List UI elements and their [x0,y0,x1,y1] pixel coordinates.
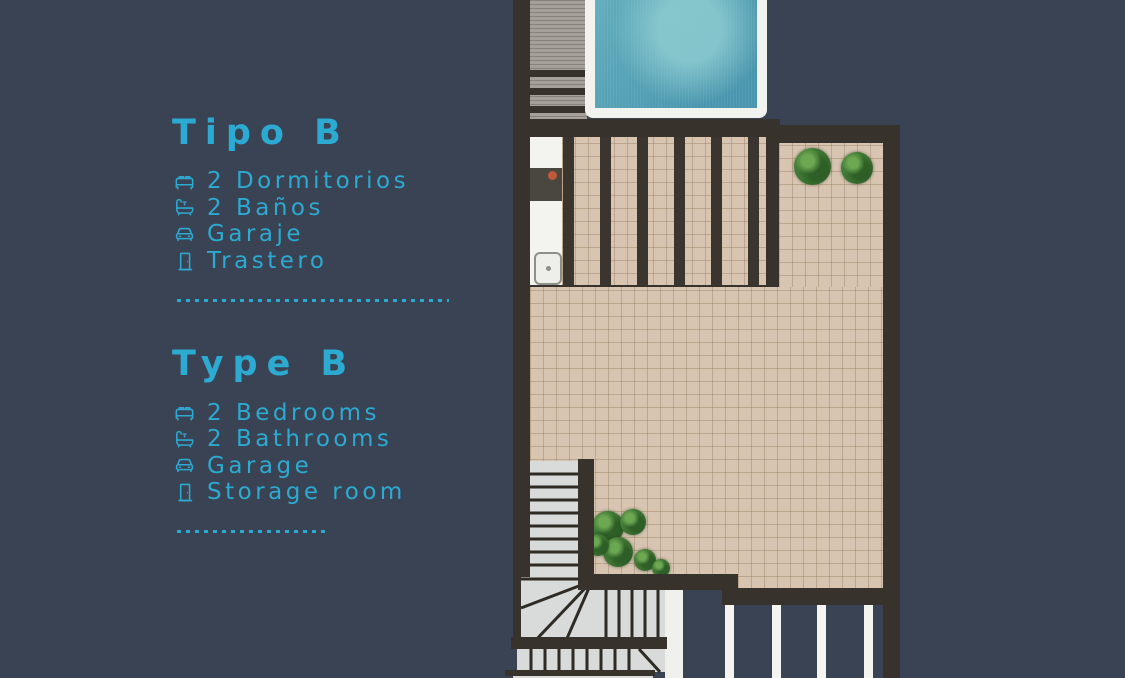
railing-bar [725,605,734,678]
page: { "palette": { "background": "#3a4353", … [0,0,1125,678]
pergola-slat [637,137,648,287]
kitchen-sink [534,252,562,285]
pergola-slat [563,137,574,287]
kitchen-appliance [530,168,562,201]
pergola-slat [674,137,685,287]
deck-step [530,88,587,95]
wood-deck [530,0,587,121]
right-wall [883,125,900,678]
potted-plant [794,148,831,185]
potted-plant [841,152,873,184]
deck-step [530,70,587,77]
divider-wall [766,125,779,297]
stove-knob [548,171,557,180]
railing-bar [772,605,781,678]
deck-step [530,106,587,113]
wall [765,125,900,143]
pergola-slat [711,137,722,287]
wall [578,574,738,590]
pergola-slat [600,137,611,287]
wall [513,119,780,137]
staircase [505,455,685,678]
floorplan [0,0,1125,678]
pergola-slat [748,137,759,287]
swimming-pool [595,0,757,108]
railing-bar [817,605,826,678]
pergola-terrace-floor [562,137,766,287]
wall [722,588,900,605]
railing-bar [864,605,873,678]
